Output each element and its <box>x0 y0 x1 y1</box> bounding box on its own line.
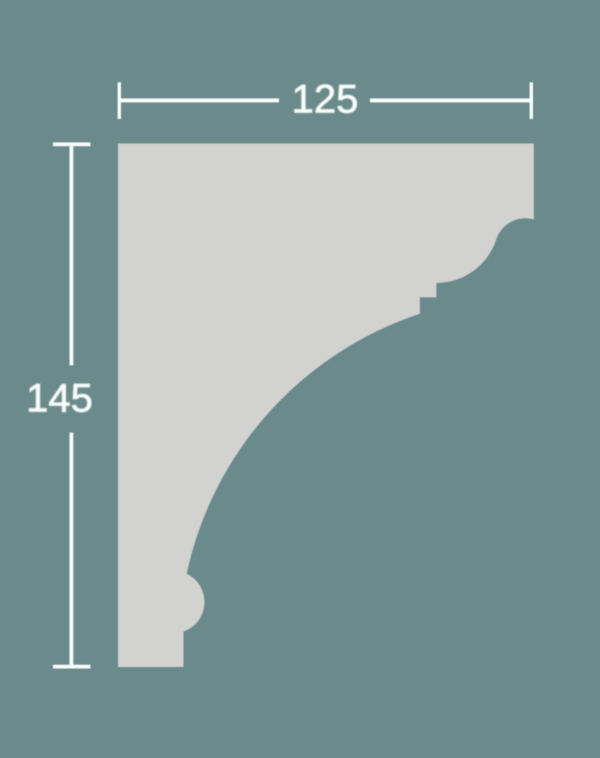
svg-text:125: 125 <box>292 78 359 122</box>
svg-text:145: 145 <box>26 376 93 420</box>
